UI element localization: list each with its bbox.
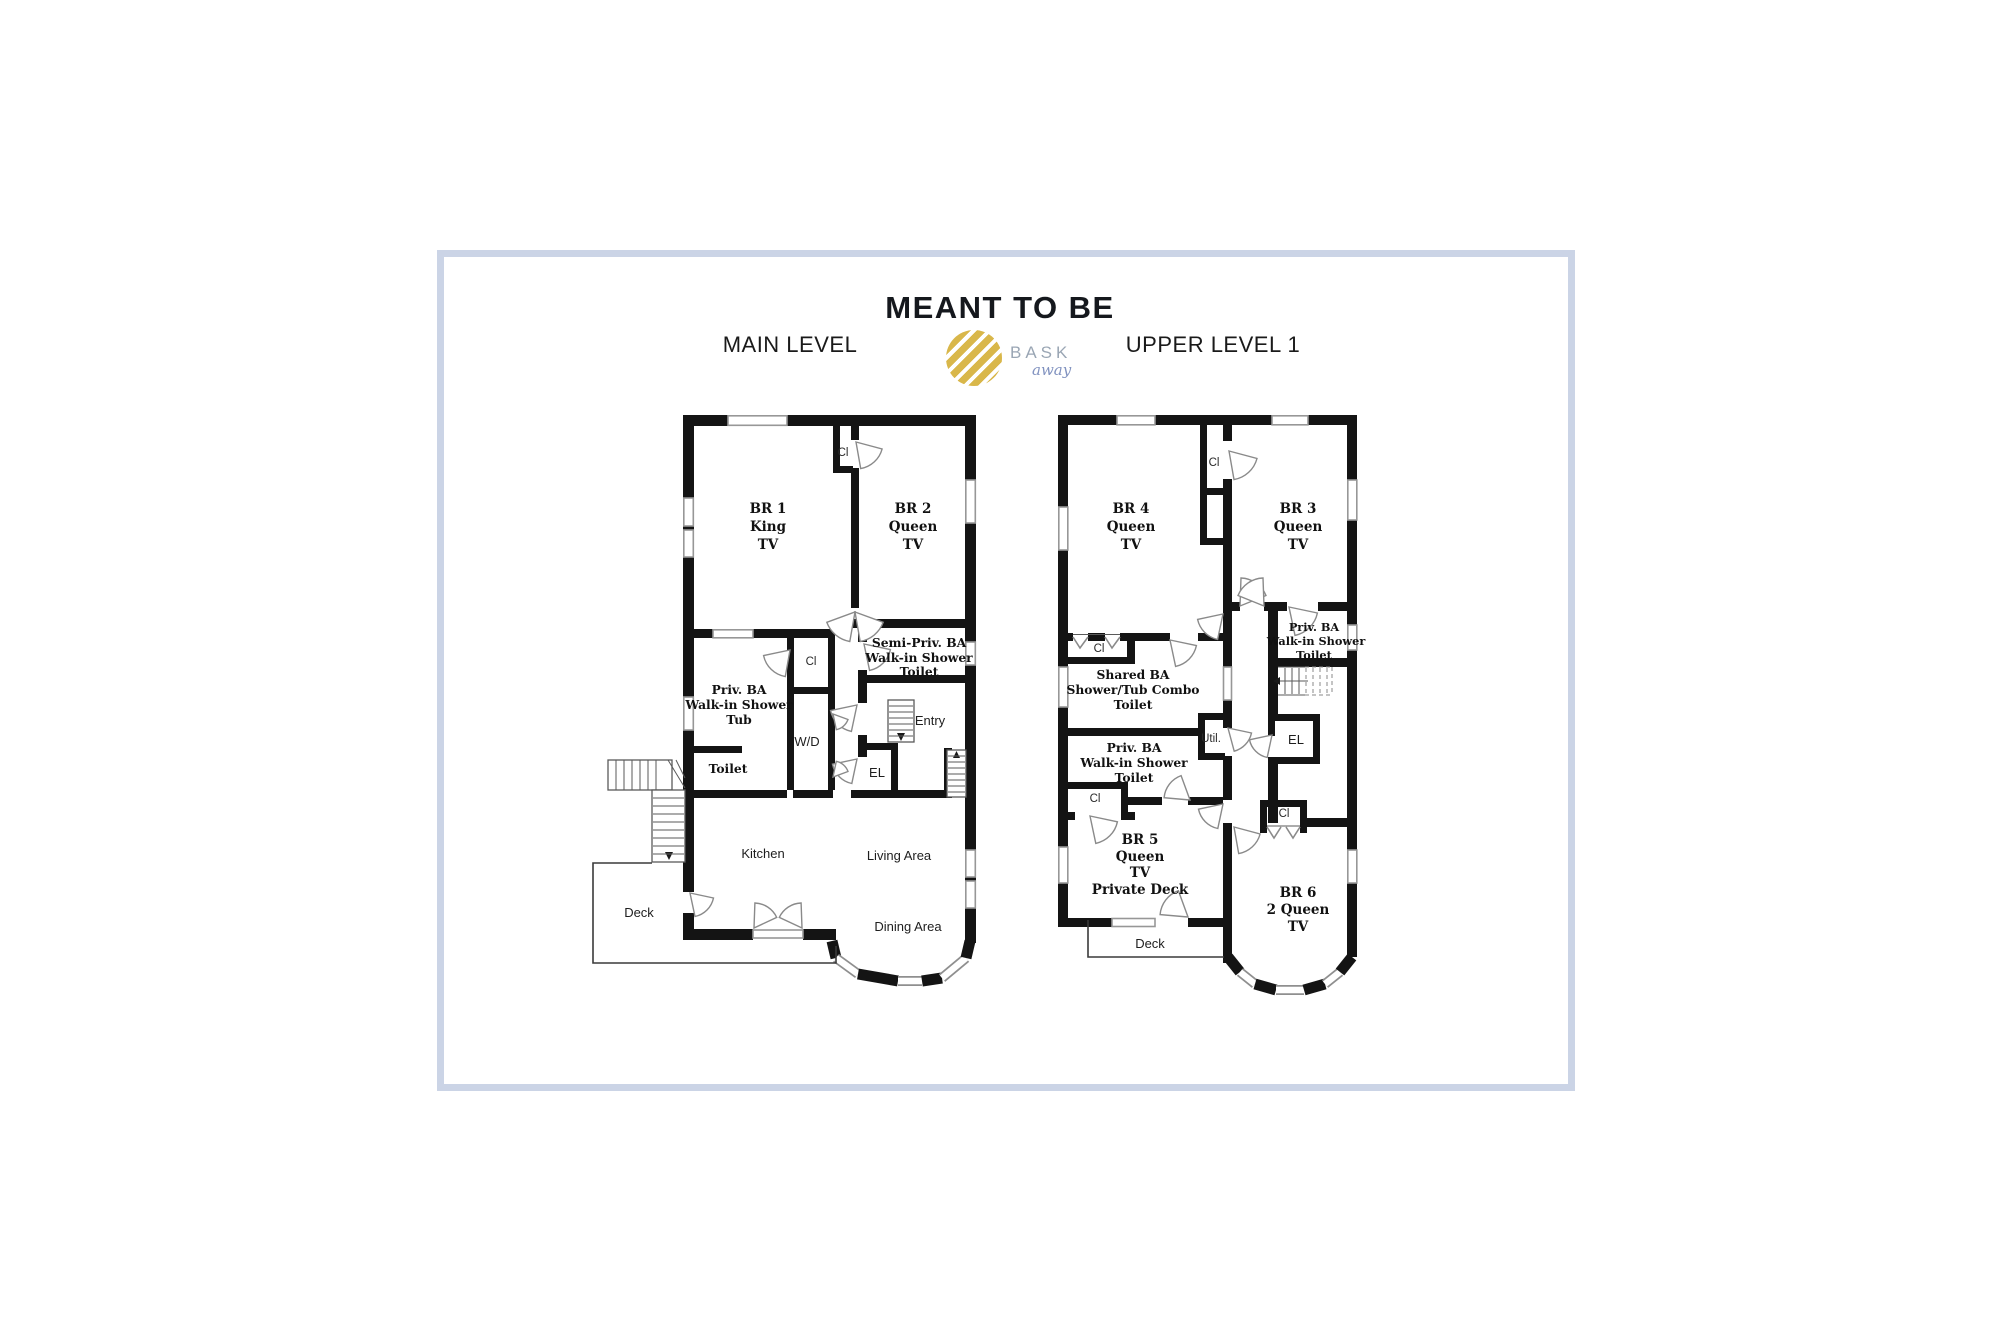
br5-tv-label: TV xyxy=(1130,865,1151,881)
shared-ba-label: Shared BA xyxy=(1097,667,1170,682)
door-swing xyxy=(1250,735,1273,758)
br2-tv-label: TV xyxy=(903,537,924,553)
semi-priv-ba-shower-label: Walk-in Shower xyxy=(864,650,973,665)
br1-bed-label: King xyxy=(750,519,787,535)
br3-bed-label: Queen xyxy=(1274,519,1323,535)
door-swing xyxy=(1234,827,1260,854)
semi-priv-ba-label: Semi-Priv. BA xyxy=(872,635,967,650)
door-swing xyxy=(1170,640,1196,666)
upper-deck-label: Deck xyxy=(1135,936,1165,951)
main-deck-label: Deck xyxy=(624,905,654,920)
priv-ba-label: Priv. BA xyxy=(712,682,767,697)
main-level-walls xyxy=(683,415,976,943)
priv-ba-br5-shower-label: Walk-in Shower xyxy=(1079,755,1188,770)
br3-tv-label: TV xyxy=(1288,537,1309,553)
br6-bed-label: 2 Queen xyxy=(1267,902,1330,918)
br2-bed-label: Queen xyxy=(889,519,938,535)
door-swing xyxy=(1164,776,1190,800)
main-level-bay-window xyxy=(832,941,970,981)
br6-label: BR 6 xyxy=(1280,885,1317,901)
upper-level-plan: BR 4 Queen TV BR 3 Queen TV Cl Priv. BA … xyxy=(1058,415,1366,990)
door-swing xyxy=(754,903,777,928)
main-level-plan: BR 1 King TV BR 2 Queen TV Cl Semi-Priv.… xyxy=(593,415,976,981)
floorplan-drawing: BR 1 King TV BR 2 Queen TV Cl Semi-Priv.… xyxy=(0,0,2000,1333)
br5-label: BR 5 xyxy=(1122,832,1159,848)
closet-br6-label: Cl xyxy=(1279,808,1290,820)
door-swing xyxy=(1229,451,1257,480)
closet-top-label: Cl xyxy=(838,447,849,459)
priv-ba-tub-label: Tub xyxy=(726,712,752,727)
br1-label: BR 1 xyxy=(750,501,787,517)
door-swing xyxy=(690,893,714,917)
priv-ba-br3-toilet-label: Toilet xyxy=(1296,648,1332,662)
br2-label: BR 2 xyxy=(895,501,932,517)
br3-label: BR 3 xyxy=(1280,501,1317,517)
closet-br4-label: Cl xyxy=(1094,643,1105,655)
upper-level-bay-window xyxy=(1228,957,1352,990)
door-swing xyxy=(1228,728,1252,751)
br4-bed-label: Queen xyxy=(1107,519,1156,535)
closet-br5-label: Cl xyxy=(1090,793,1101,805)
floorplan-sheet: MEANT TO BE MAIN LEVEL UPPER LEVEL 1 BAS… xyxy=(0,0,2000,1333)
door-swing xyxy=(1090,816,1117,843)
priv-ba-br5-toilet-label: Toilet xyxy=(1115,770,1154,785)
br4-tv-label: TV xyxy=(1121,537,1142,553)
washer-dryer-label: W/D xyxy=(794,734,819,749)
closet-hall-label: Cl xyxy=(806,656,817,668)
semi-priv-ba-toilet-label: Toilet xyxy=(900,664,939,679)
kitchen-label: Kitchen xyxy=(741,846,784,861)
priv-ba-br3-shower-label: Walk-in Shower xyxy=(1266,634,1367,648)
br1-tv-label: TV xyxy=(758,537,779,553)
priv-ba-br5-label: Priv. BA xyxy=(1107,740,1162,755)
dining-area-label: Dining Area xyxy=(874,919,942,934)
door-swing xyxy=(779,903,802,928)
door-swing xyxy=(764,650,790,677)
door-swing xyxy=(856,442,882,469)
door-swing xyxy=(1199,804,1224,829)
br4-label: BR 4 xyxy=(1113,501,1150,517)
priv-ba-br3-label: Priv. BA xyxy=(1289,620,1340,634)
br6-tv-label: TV xyxy=(1288,919,1309,935)
priv-ba-shower-label: Walk-in Shower xyxy=(684,697,793,712)
upper-level-stairs xyxy=(1273,667,1332,695)
upper-elevator-label: EL xyxy=(1288,732,1304,747)
upper-closet-top-label: Cl xyxy=(1209,457,1220,469)
br5-deck-feature-label: Private Deck xyxy=(1092,882,1189,898)
util-label: Util. xyxy=(1201,733,1221,745)
upper-level-room-labels: BR 4 Queen TV BR 3 Queen TV Cl Priv. BA … xyxy=(1066,457,1366,951)
toilet-label: Toilet xyxy=(709,761,748,776)
br5-bed-label: Queen xyxy=(1116,849,1165,865)
elevator-label: EL xyxy=(869,765,885,780)
entry-label: Entry xyxy=(915,713,946,728)
living-area-label: Living Area xyxy=(867,848,932,863)
shared-ba-toilet-label: Toilet xyxy=(1114,697,1153,712)
shared-ba-shower-label: Shower/Tub Combo xyxy=(1066,682,1199,697)
